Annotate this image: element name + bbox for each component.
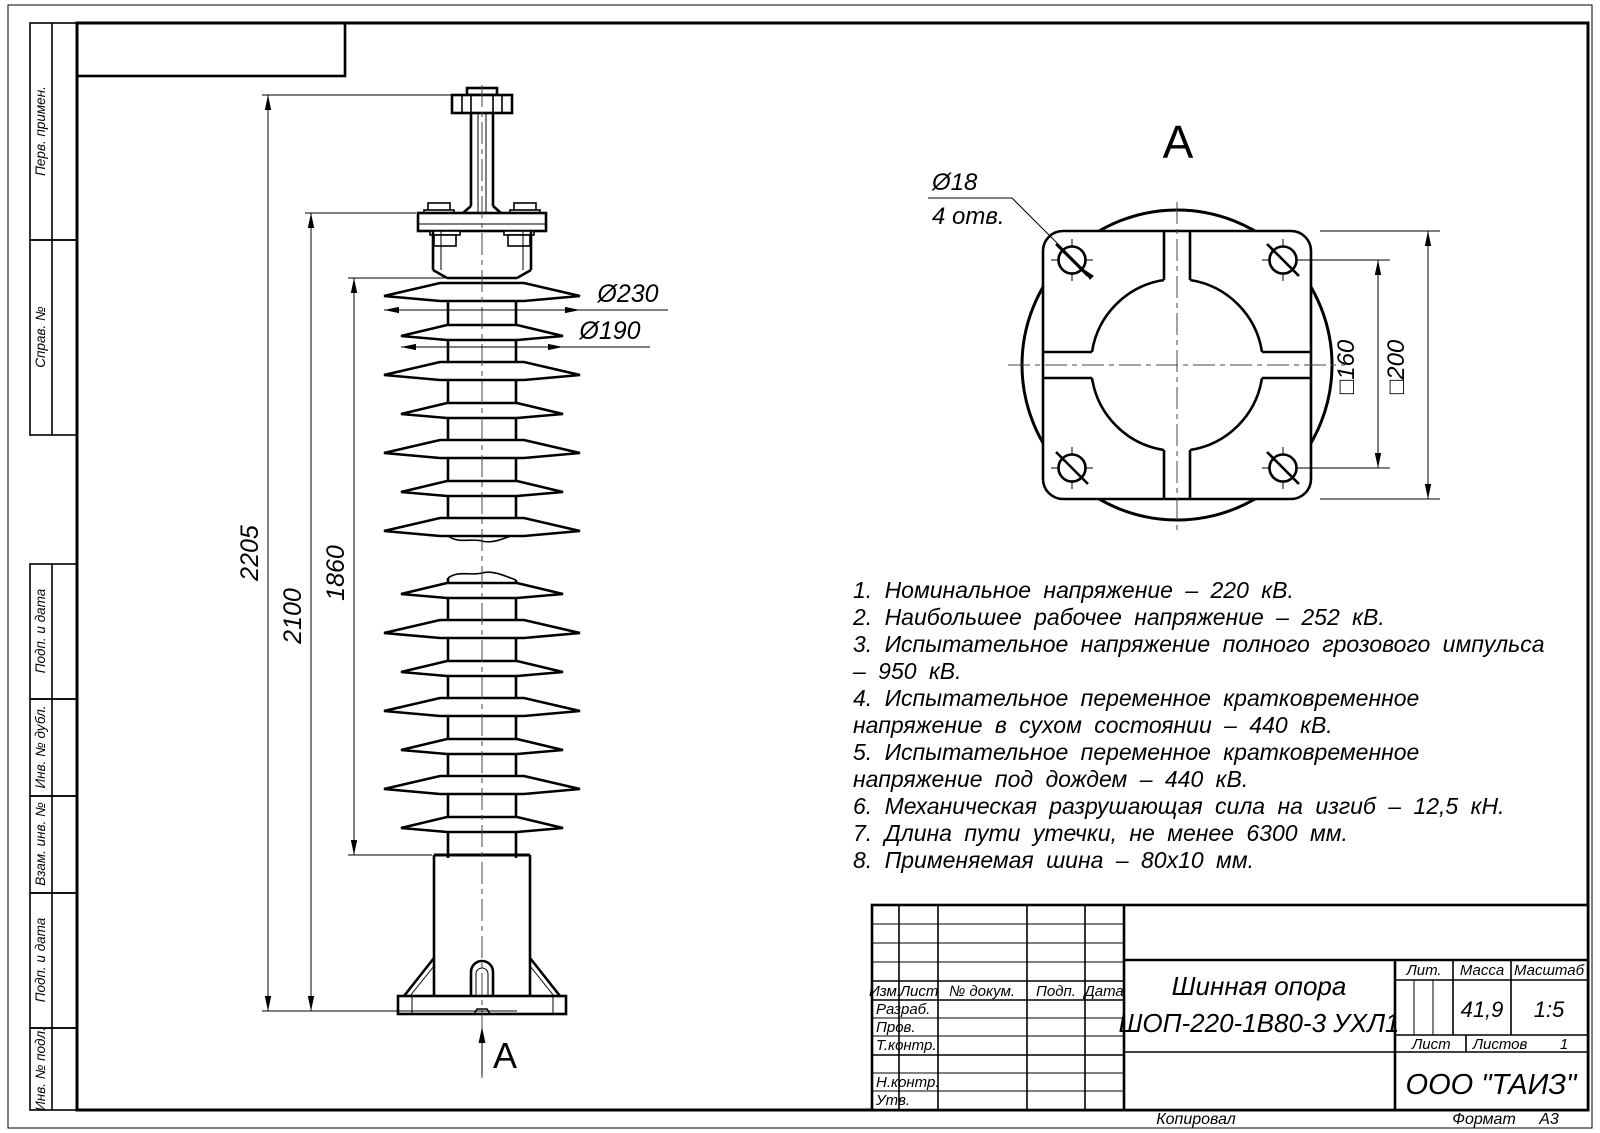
row-prov: Пров. <box>876 1019 916 1036</box>
dim-small-shed-dia: Ø190 <box>578 317 640 345</box>
col-podp: Подп. <box>1036 983 1076 1000</box>
view-arrow-label: А <box>493 1035 517 1076</box>
margin-label-podp-data-1: Подп. и дата <box>33 588 48 673</box>
margin-label-perv-primen: Перв. примен. <box>33 86 48 176</box>
kopiroval-label: Копировал <box>1156 1111 1236 1128</box>
note-item: 8. Применяемая шина – 80х10 мм. <box>853 847 1560 874</box>
margin-label-inv-dubl: Инв. № дубл. <box>33 705 48 788</box>
dim-flange-height: 2100 <box>279 588 307 645</box>
top-view-title: А <box>1163 116 1194 168</box>
front-view: А <box>384 85 580 1078</box>
footer: Копировал Формат А3 <box>1156 1111 1559 1128</box>
dim-bolt-square: □160 <box>1333 339 1360 394</box>
margin-label-podp-data-2: Подп. и дата <box>33 917 48 1002</box>
dim-flange-square: □200 <box>1383 339 1410 394</box>
note-item: 5. Испытательное переменное кратковремен… <box>853 739 1560 793</box>
drawing-sheet: Перв. примен. Справ. № Подп. и дата Инв.… <box>0 0 1600 1133</box>
doc-title-line2: ШОП-220-1В80-3 УХЛ1 <box>1119 1008 1400 1038</box>
massa-label: Масса <box>1460 962 1504 979</box>
title-block: Изм. Лист № докум. Подп. Дата Разраб. Пр… <box>869 905 1588 1110</box>
format-value: А3 <box>1538 1111 1559 1128</box>
hole-count-label: 4 отв. <box>932 203 1005 230</box>
listov-label: Листов <box>1472 1036 1528 1053</box>
masshtab-label: Масштаб <box>1514 962 1585 979</box>
designation-box <box>77 23 345 76</box>
format-label: Формат <box>1452 1111 1516 1128</box>
drawing-canvas: Перв. примен. Справ. № Подп. и дата Инв.… <box>0 0 1600 1133</box>
note-item: 3. Испытательное напряжение полного гроз… <box>853 631 1560 685</box>
row-tkontr: Т.контр. <box>876 1037 937 1054</box>
note-item: 2. Наибольшее рабочее напряжение – 252 к… <box>853 604 1560 631</box>
massa-value: 41,9 <box>1461 997 1504 1022</box>
margin-column: Перв. примен. Справ. № Подп. и дата Инв.… <box>30 23 77 1111</box>
doc-title-line1: Шинная опора <box>1172 971 1347 1001</box>
note-item: 6. Механическая разрушающая сила на изги… <box>853 793 1560 820</box>
row-razrab: Разраб. <box>876 1001 930 1018</box>
margin-label-sprav-n: Справ. № <box>33 306 48 368</box>
hole-dia-label: Ø18 <box>931 169 978 196</box>
row-utv: Утв. <box>875 1092 910 1109</box>
listov-value: 1 <box>1560 1036 1568 1053</box>
dim-large-shed-dia: Ø230 <box>596 280 658 308</box>
top-view: А <box>928 116 1440 530</box>
note-item: 7. Длина пути утечки, не менее 6300 мм. <box>853 820 1560 847</box>
note-item: 4. Испытательное переменное кратковремен… <box>853 685 1560 739</box>
col-list: Лист <box>899 983 939 1000</box>
lit-label: Лит. <box>1405 962 1441 979</box>
note-item: 1. Номинальное напряжение – 220 кВ. <box>853 577 1560 604</box>
view-direction-arrow: А <box>479 1027 517 1076</box>
masshtab-value: 1:5 <box>1534 997 1565 1022</box>
row-nkontr: Н.контр. <box>876 1074 940 1091</box>
col-data: Дата <box>1082 983 1124 1000</box>
dim-total-height: 2205 <box>236 525 264 582</box>
technical-notes: 1. Номинальное напряжение – 220 кВ. 2. Н… <box>853 577 1560 874</box>
list-label: Лист <box>1411 1036 1451 1053</box>
col-izm: Изм. <box>869 983 901 1000</box>
col-ndoc: № докум. <box>949 983 1015 1000</box>
margin-label-vzam-inv: Взам. инв. № <box>33 802 48 886</box>
company-name: ООО "ТАИЗ" <box>1406 1069 1579 1101</box>
margin-label-inv-podl: Инв. № подл. <box>33 1027 48 1111</box>
dim-insulator-height: 1860 <box>322 545 350 601</box>
